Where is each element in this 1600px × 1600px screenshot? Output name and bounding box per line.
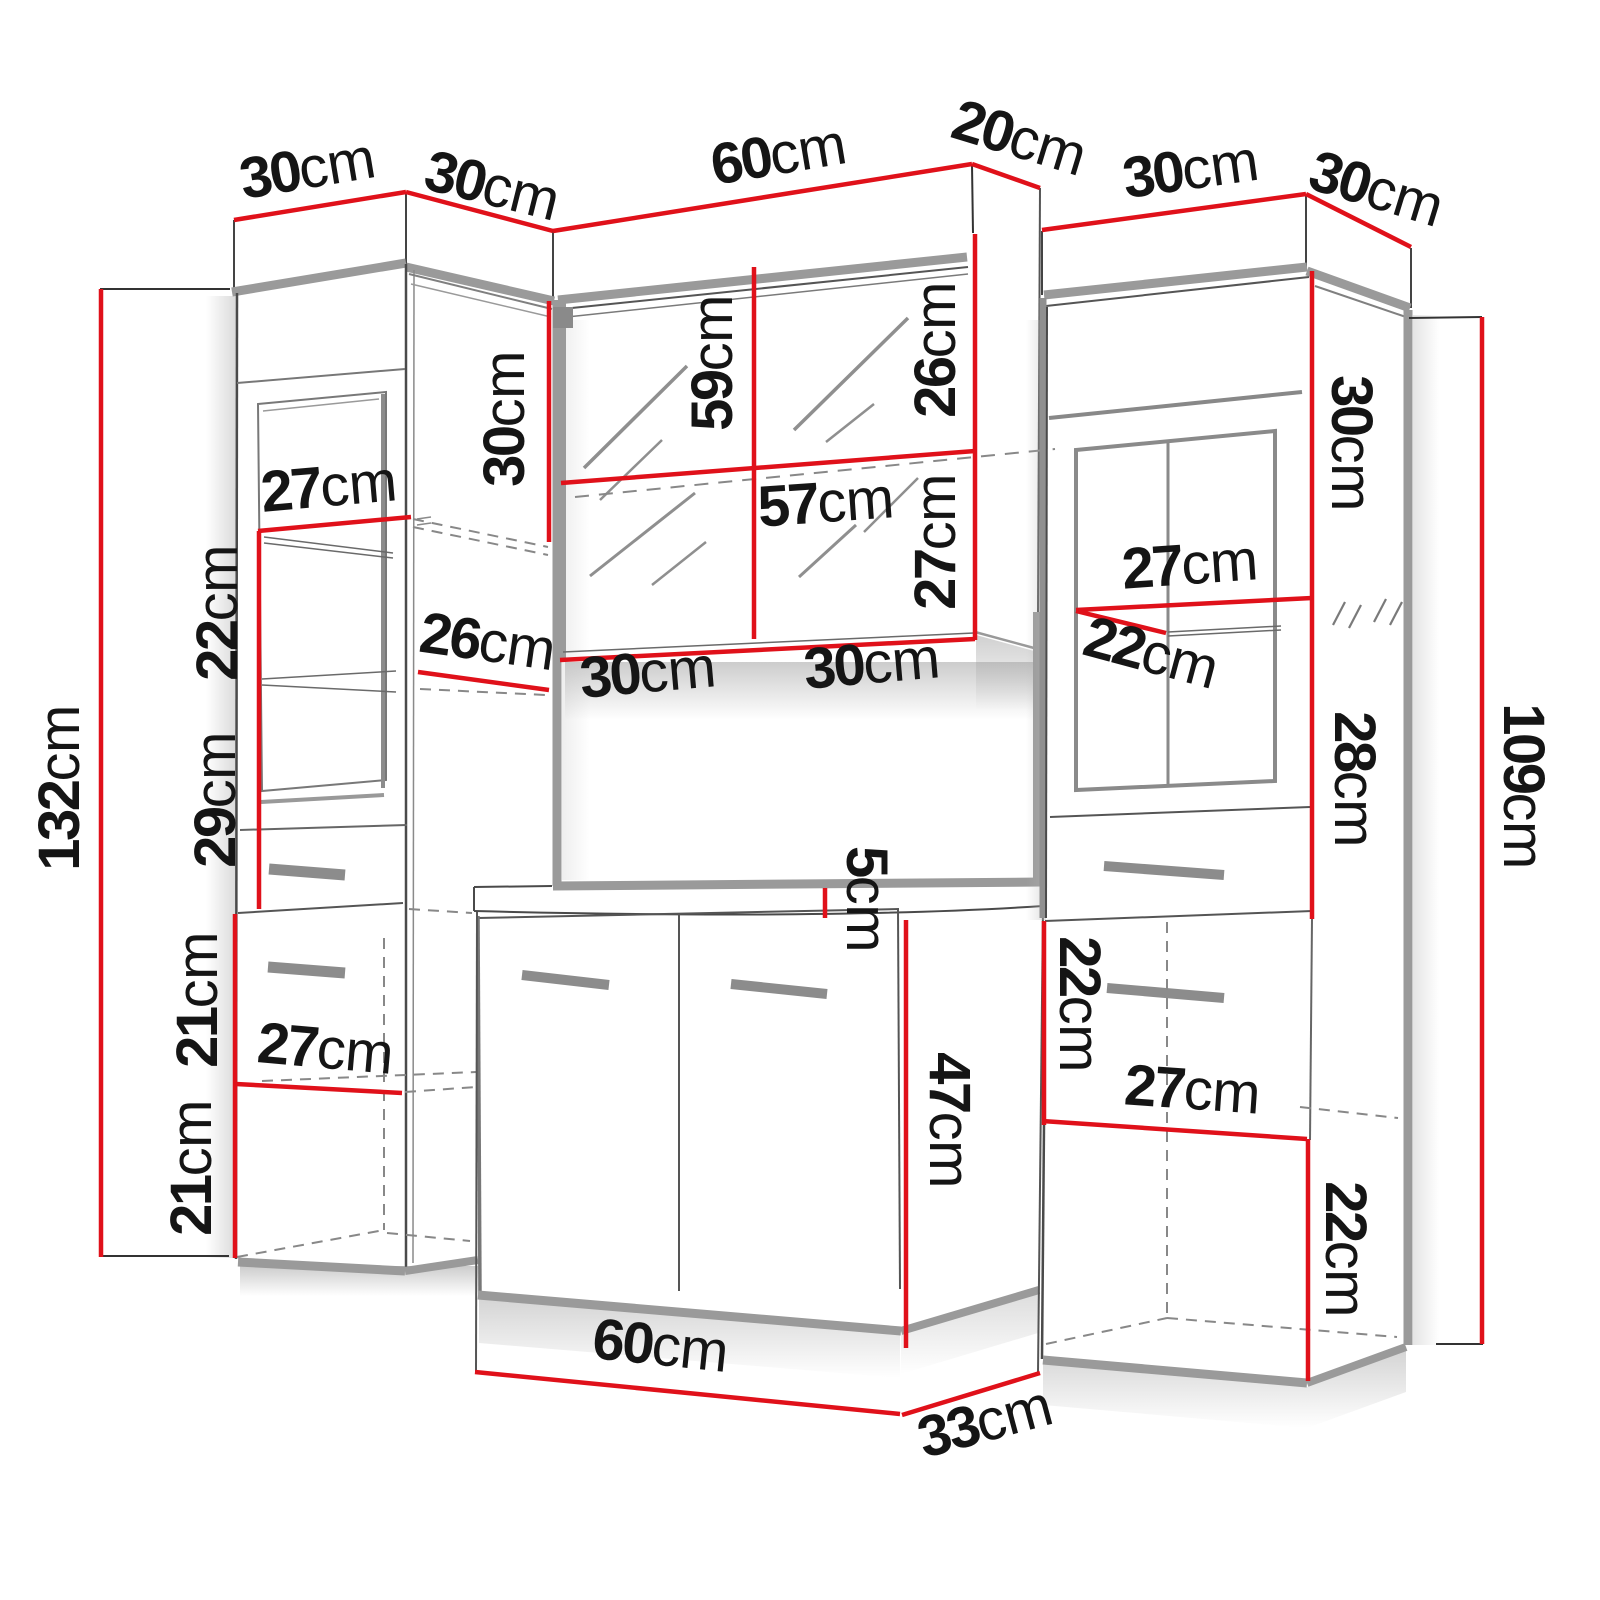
svg-text:47cm: 47cm (917, 1052, 982, 1188)
svg-text:59cm: 59cm (680, 295, 745, 431)
svg-text:30cm: 30cm (801, 626, 942, 703)
svg-text:57cm: 57cm (756, 466, 896, 540)
svg-text:30cm: 30cm (418, 138, 566, 234)
svg-text:30cm: 30cm (1302, 138, 1451, 240)
svg-text:26cm: 26cm (903, 282, 968, 418)
svg-text:60cm: 60cm (589, 1306, 731, 1385)
svg-text:21cm: 21cm (165, 932, 230, 1068)
svg-text:132cm: 132cm (27, 705, 92, 871)
svg-text:22cm: 22cm (185, 545, 250, 681)
svg-text:30cm: 30cm (577, 635, 718, 712)
svg-text:27cm: 27cm (1122, 1053, 1262, 1127)
svg-text:22cm: 22cm (1313, 1181, 1378, 1317)
svg-text:22cm: 22cm (1047, 936, 1112, 1072)
svg-text:29cm: 29cm (183, 732, 248, 868)
svg-text:27cm: 27cm (903, 474, 968, 610)
svg-text:26cm: 26cm (416, 600, 560, 683)
svg-text:20cm: 20cm (945, 87, 1094, 189)
svg-text:27cm: 27cm (1120, 528, 1260, 602)
svg-text:28cm: 28cm (1322, 711, 1387, 847)
svg-text:5cm: 5cm (834, 846, 899, 952)
svg-text:27cm: 27cm (255, 1011, 396, 1088)
svg-text:33cm: 33cm (911, 1373, 1059, 1471)
svg-text:30cm: 30cm (472, 351, 537, 487)
svg-text:30cm: 30cm (1319, 375, 1384, 511)
svg-text:21cm: 21cm (159, 1100, 224, 1236)
svg-text:30cm: 30cm (1119, 128, 1263, 211)
svg-text:22cm: 22cm (1077, 604, 1225, 702)
svg-text:109cm: 109cm (1491, 703, 1556, 869)
svg-text:27cm: 27cm (258, 449, 399, 526)
